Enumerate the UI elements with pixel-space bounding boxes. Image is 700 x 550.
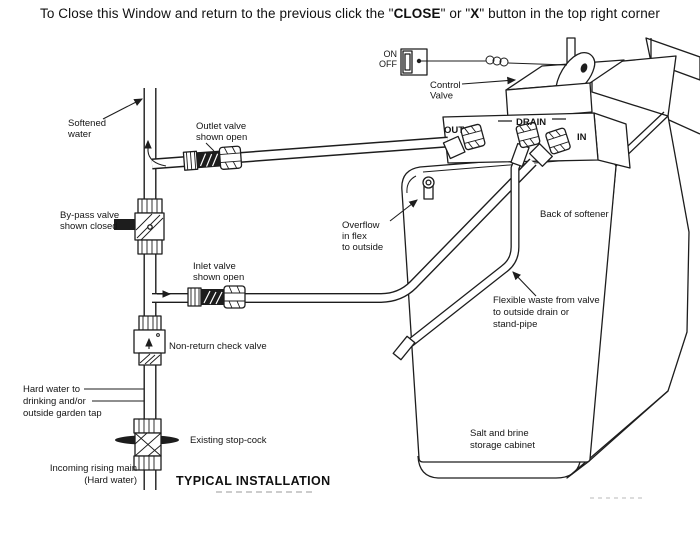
wire-coil-icon	[486, 56, 508, 66]
bypass-valve-label: By-pass valveshown closed	[60, 210, 119, 232]
overflow-label: Overflowin flexto outside	[342, 220, 383, 253]
in-label: IN	[577, 132, 587, 143]
control-valve-label: ControlValve	[430, 80, 461, 102]
out-label: OUT	[444, 125, 464, 136]
control-valve-arrow-icon	[462, 80, 515, 84]
back-of-softener-label: Back of softener	[540, 209, 609, 220]
screenshot: To Close this Window and return to the p…	[0, 0, 700, 550]
outlet-valve-label: Outlet valveshown open	[196, 121, 247, 143]
softened-water-label: Softenedwater	[67, 118, 106, 140]
incoming-main-label: Incoming rising main(Hard water)	[50, 463, 137, 486]
bypass-valve	[114, 199, 164, 254]
inlet-valve-label: Inlet valveshown open	[193, 261, 244, 283]
inlet-valve	[188, 286, 245, 308]
salt-brine-label: Salt and brinestorage cabinet	[470, 428, 535, 451]
hard-water-branch	[84, 389, 144, 401]
outlet-valve-leader	[206, 143, 214, 151]
non-return-label: Non-return check valve	[169, 341, 267, 352]
non-return-check-valve	[134, 316, 165, 365]
off-label: OFF	[379, 59, 397, 69]
existing-stopcock-label: Existing stop-cock	[190, 435, 267, 446]
softened-water-arrow-icon	[103, 99, 142, 119]
diagram-title: TYPICAL INSTALLATION	[176, 474, 331, 488]
on-label: ON	[384, 49, 398, 59]
drain-label: DRAIN	[516, 117, 546, 128]
installation-diagram: ON OFF ControlValve OUT DRAIN IN Softene…	[0, 0, 700, 550]
overflow-fitting	[423, 177, 434, 199]
